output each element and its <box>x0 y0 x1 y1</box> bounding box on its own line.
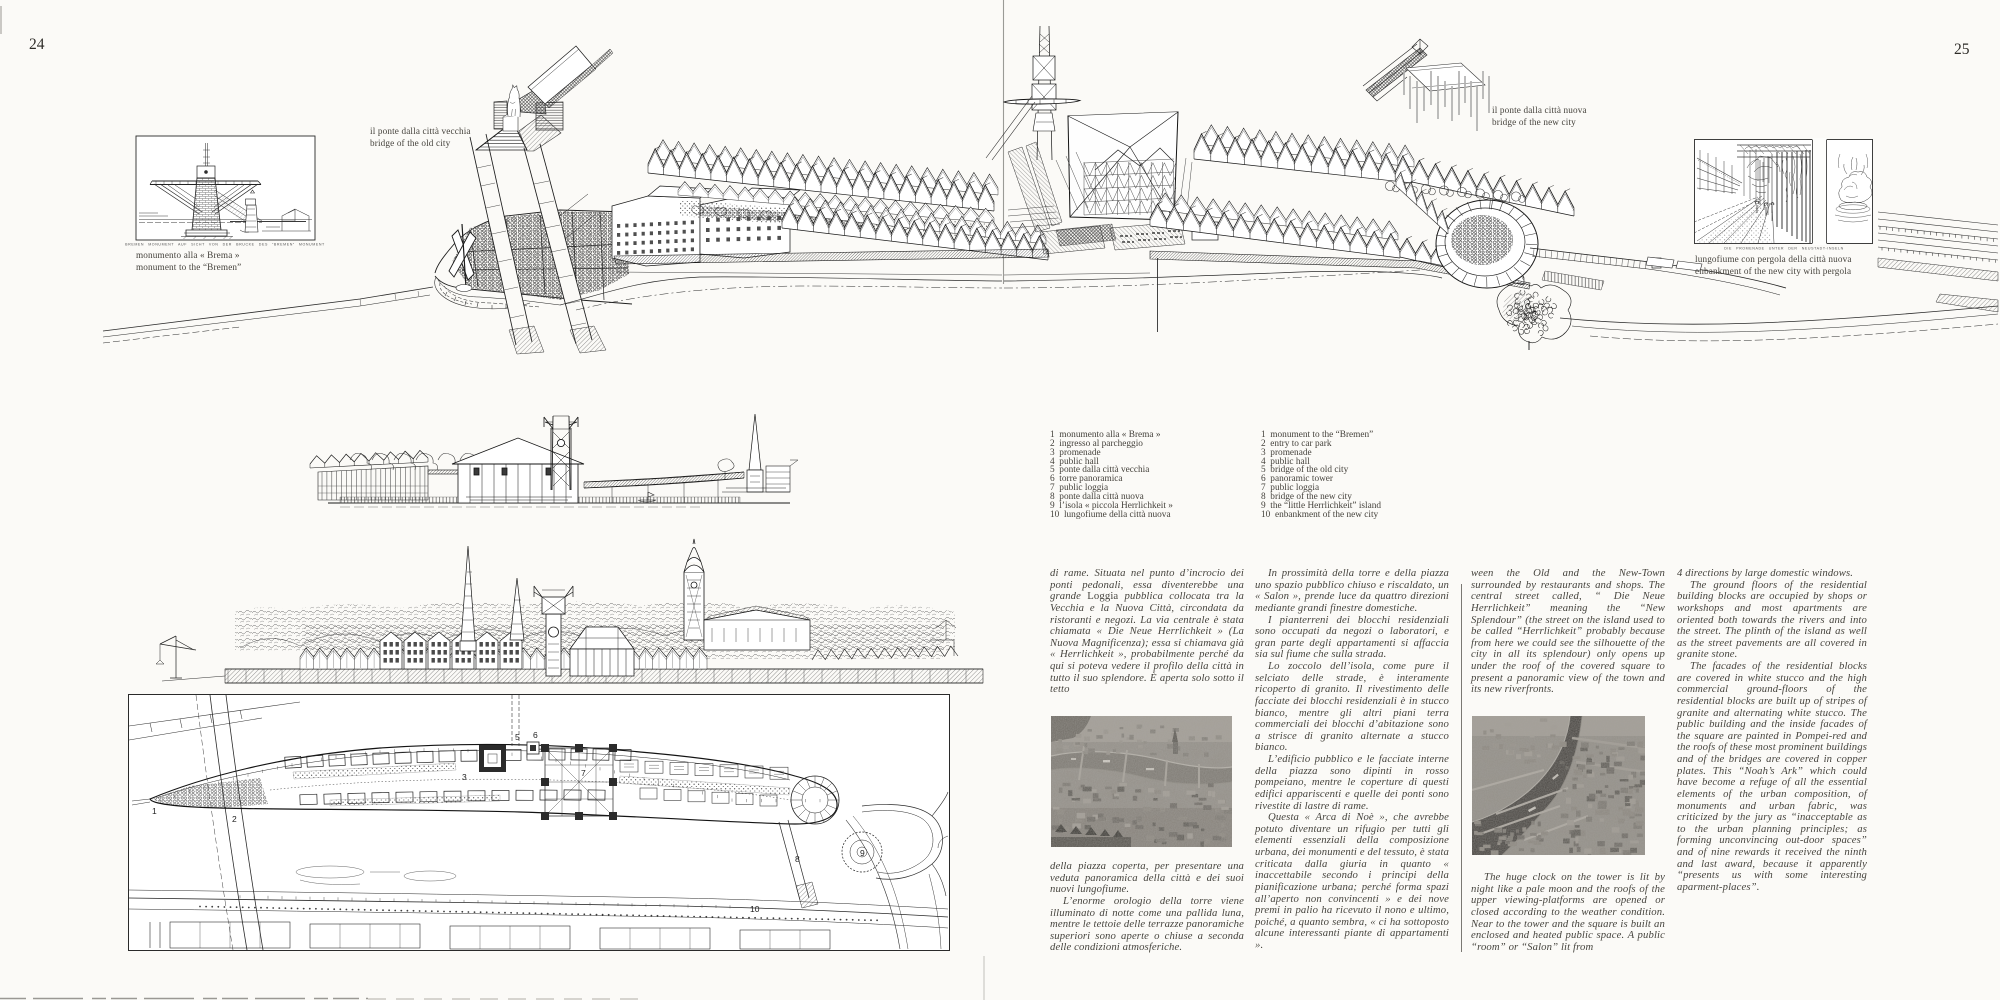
svg-text:5: 5 <box>515 732 520 742</box>
svg-text:7: 7 <box>581 768 586 778</box>
svg-text:9: 9 <box>860 848 865 858</box>
svg-text:1: 1 <box>152 806 157 816</box>
svg-text:10: 10 <box>750 904 760 914</box>
svg-text:4: 4 <box>491 754 496 764</box>
svg-text:BREMEN MONUMENT AUF SICHT V: BREMEN MONUMENT AUF SICHT VON DER BRUCKE… <box>125 243 325 247</box>
svg-text:2: 2 <box>232 814 237 824</box>
svg-text:3: 3 <box>462 772 467 782</box>
svg-text:8: 8 <box>795 854 800 864</box>
svg-text:DIE PROMENADE UNTER DER NEUSTA: DIE PROMENADE UNTER DER NEUSTADT-INSELN <box>1724 247 1844 251</box>
svg-text:6: 6 <box>533 730 538 740</box>
